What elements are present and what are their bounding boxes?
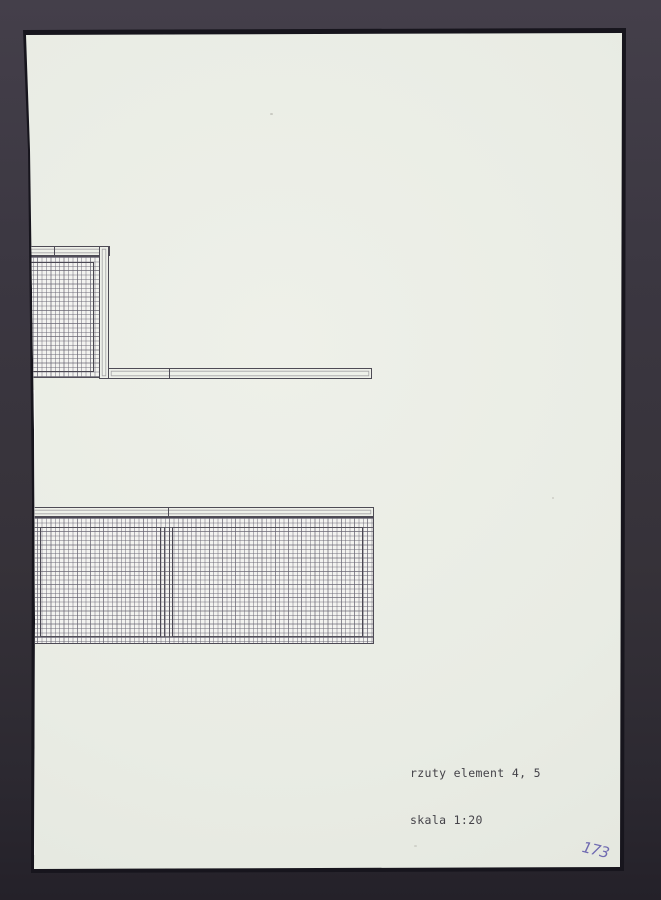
caption-title: rzuty element 4, 5 (410, 766, 541, 782)
scan-speck (270, 113, 273, 115)
element4-top-rail (24, 246, 110, 256)
element4-right-rail (99, 246, 110, 379)
element5-top-rail (24, 507, 374, 517)
handwritten-page-number: 173 (580, 838, 611, 862)
caption-scale: skala 1:20 (410, 813, 541, 829)
drawing-caption: rzuty element 4, 5 skala 1:20 (410, 735, 541, 859)
element5-mullion-line-left (164, 527, 165, 637)
scanned-page-background: rzuty element 4, 5 skala 1:20 173 (0, 0, 661, 900)
element4-inner-frame (24, 262, 94, 372)
element5-inner-bottom-line (24, 636, 374, 637)
paper-sheet: rzuty element 4, 5 skala 1:20 173 (0, 0, 661, 900)
element4-bottom-rail-divider (169, 369, 170, 378)
element4-top-rail-divider (54, 247, 55, 255)
element5-inner-frame-right (172, 527, 363, 638)
element4-bottom-rail (108, 368, 372, 379)
element5-inner-frame-left (40, 527, 161, 638)
scan-speck (552, 497, 554, 499)
element5-inner-top-line (24, 527, 374, 528)
element5-mullion-line-right (169, 527, 170, 637)
element5-top-rail-divider (168, 508, 169, 516)
scan-speck (414, 845, 417, 847)
